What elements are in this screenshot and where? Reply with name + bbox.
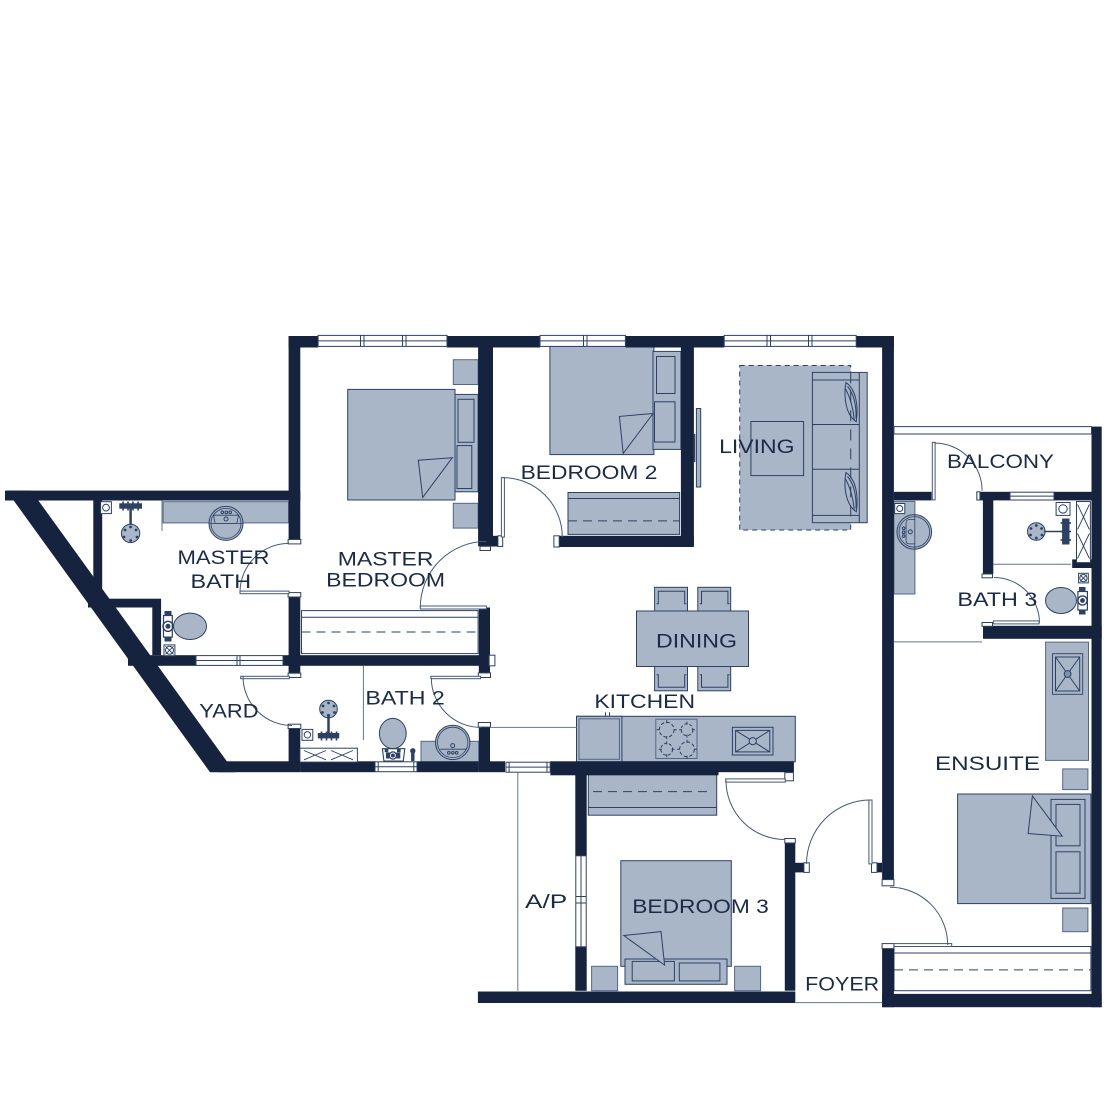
svg-text:BATH 3: BATH 3	[957, 589, 1037, 611]
svg-text:FOYER: FOYER	[805, 973, 879, 995]
svg-text:LIVING: LIVING	[719, 436, 794, 458]
svg-text:ENSUITE: ENSUITE	[935, 753, 1040, 775]
svg-text:BATH: BATH	[191, 571, 252, 593]
svg-text:BEDROOM 3: BEDROOM 3	[632, 896, 769, 918]
svg-text:YARD: YARD	[199, 701, 258, 723]
svg-text:KITCHEN: KITCHEN	[594, 691, 695, 713]
svg-text:BATH 2: BATH 2	[365, 687, 444, 709]
svg-text:A/P: A/P	[525, 891, 567, 913]
svg-text:BALCONY: BALCONY	[947, 451, 1054, 473]
svg-text:MASTER: MASTER	[338, 548, 434, 570]
svg-text:MASTER: MASTER	[178, 547, 270, 569]
svg-text:DINING: DINING	[656, 630, 737, 652]
svg-text:BEDROOM: BEDROOM	[326, 570, 445, 592]
svg-text:BEDROOM 2: BEDROOM 2	[521, 462, 658, 484]
